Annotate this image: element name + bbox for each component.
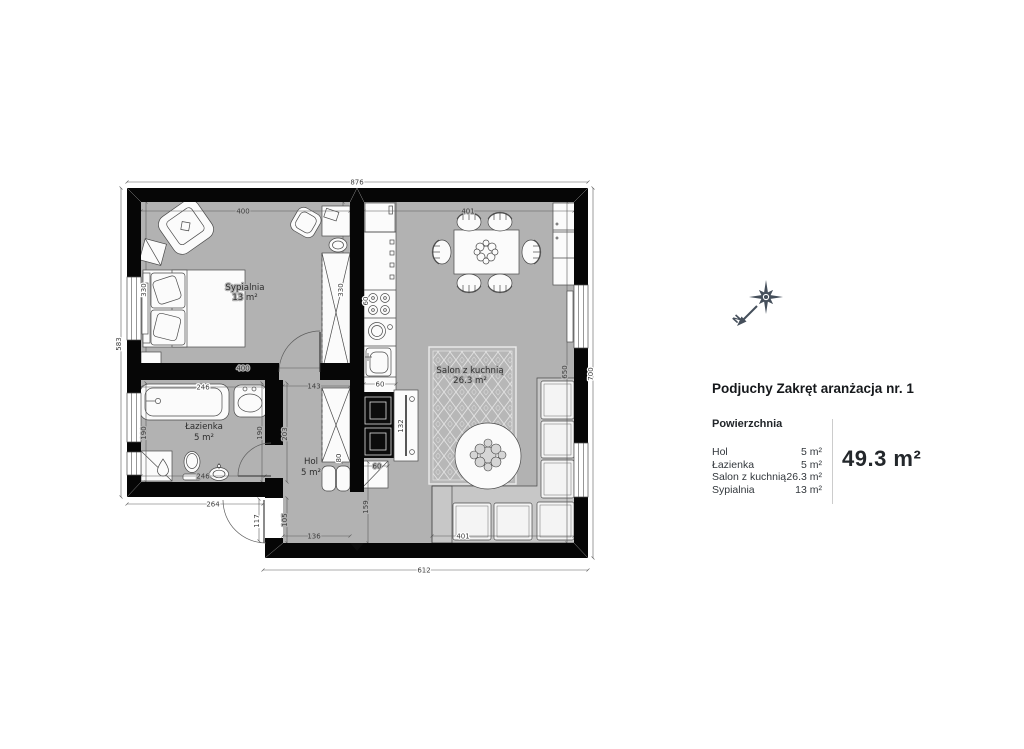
svg-text:203: 203 <box>281 427 289 440</box>
row-label: Salon z kuchnią <box>712 471 786 484</box>
svg-text:330: 330 <box>140 283 148 296</box>
kitchen-peninsula <box>361 392 394 458</box>
sideboard <box>553 203 575 285</box>
label-lazienka: Łazienka <box>184 422 223 432</box>
svg-text:60: 60 <box>373 463 382 471</box>
svg-text:246: 246 <box>196 473 210 481</box>
compass-north-label: N <box>731 314 743 326</box>
row-value: 26.3 m² <box>786 471 822 484</box>
label-salon-area: 26.3 m² <box>453 376 487 386</box>
svg-text:60: 60 <box>362 297 370 306</box>
svg-text:401: 401 <box>456 533 469 541</box>
svg-text:60: 60 <box>376 381 385 389</box>
svg-text:159: 159 <box>362 500 370 513</box>
area-section-label: Powierzchnia <box>712 418 782 430</box>
row-value: 5 m² <box>801 459 822 472</box>
svg-text:117: 117 <box>253 514 261 527</box>
floor-plan: Sypialnia 13 m² Łazienka 5 m² Hol 5 m² S… <box>108 172 610 580</box>
window-salon-2 <box>574 443 588 497</box>
coffee-table <box>455 423 521 489</box>
bed <box>143 270 245 347</box>
table-row: Łazienka 5 m² <box>712 459 822 472</box>
svg-text:136: 136 <box>307 533 321 541</box>
row-value: 5 m² <box>801 446 822 459</box>
bathtub <box>140 384 229 420</box>
compass: N <box>725 266 805 334</box>
row-label: Sypialnia <box>712 484 755 497</box>
svg-text:400: 400 <box>236 208 249 216</box>
svg-text:650: 650 <box>561 365 569 378</box>
svg-text:143: 143 <box>307 383 320 391</box>
svg-text:190: 190 <box>140 426 148 439</box>
table-row: Hol 5 m² <box>712 446 822 459</box>
window-bath-1 <box>127 393 141 442</box>
svg-text:105: 105 <box>281 513 289 526</box>
table-row: Sypialnia 13 m² <box>712 484 822 497</box>
svg-text:612: 612 <box>417 567 430 575</box>
table-row: Salon z kuchnią 26.3 m² <box>712 471 822 484</box>
total-area: 49.3 m² <box>842 446 921 472</box>
window-bath-2 <box>127 452 141 475</box>
svg-text:80: 80 <box>335 454 343 463</box>
svg-text:132: 132 <box>397 419 405 432</box>
wardrobe-bedroom <box>322 253 350 372</box>
vertical-divider <box>832 419 833 504</box>
wardrobe-hall <box>322 388 350 462</box>
svg-text:400: 400 <box>236 365 249 373</box>
page-title: Podjuchy Zakręt aranżacja nr. 1 <box>712 381 992 396</box>
label-hol: Hol <box>304 457 318 467</box>
svg-text:876: 876 <box>350 179 364 187</box>
label-hol-area: 5 m² <box>301 468 321 478</box>
dining-table <box>454 230 519 274</box>
row-value: 13 m² <box>795 484 822 497</box>
label-salon: Salon z kuchnią <box>436 366 503 376</box>
label-lazienka-area: 5 m² <box>194 433 214 443</box>
shower <box>141 451 172 481</box>
svg-text:264: 264 <box>206 501 220 509</box>
row-label: Łazienka <box>712 459 754 472</box>
compass-rose-icon <box>737 280 783 326</box>
area-table: Hol 5 m² Łazienka 5 m² Salon z kuchnią 2… <box>712 446 822 496</box>
svg-text:190: 190 <box>256 426 264 439</box>
svg-text:700: 700 <box>587 367 595 380</box>
window-salon-1 <box>567 285 588 348</box>
svg-text:330: 330 <box>337 283 345 296</box>
row-label: Hol <box>712 446 728 459</box>
svg-text:246: 246 <box>196 384 210 392</box>
svg-text:401: 401 <box>461 208 474 216</box>
label-sypialnia-area: 13 m² <box>232 293 257 303</box>
page: Sypialnia 13 m² Łazienka 5 m² Hol 5 m² S… <box>0 0 1024 749</box>
label-sypialnia: Sypialnia <box>225 283 264 293</box>
svg-text:583: 583 <box>115 337 123 350</box>
